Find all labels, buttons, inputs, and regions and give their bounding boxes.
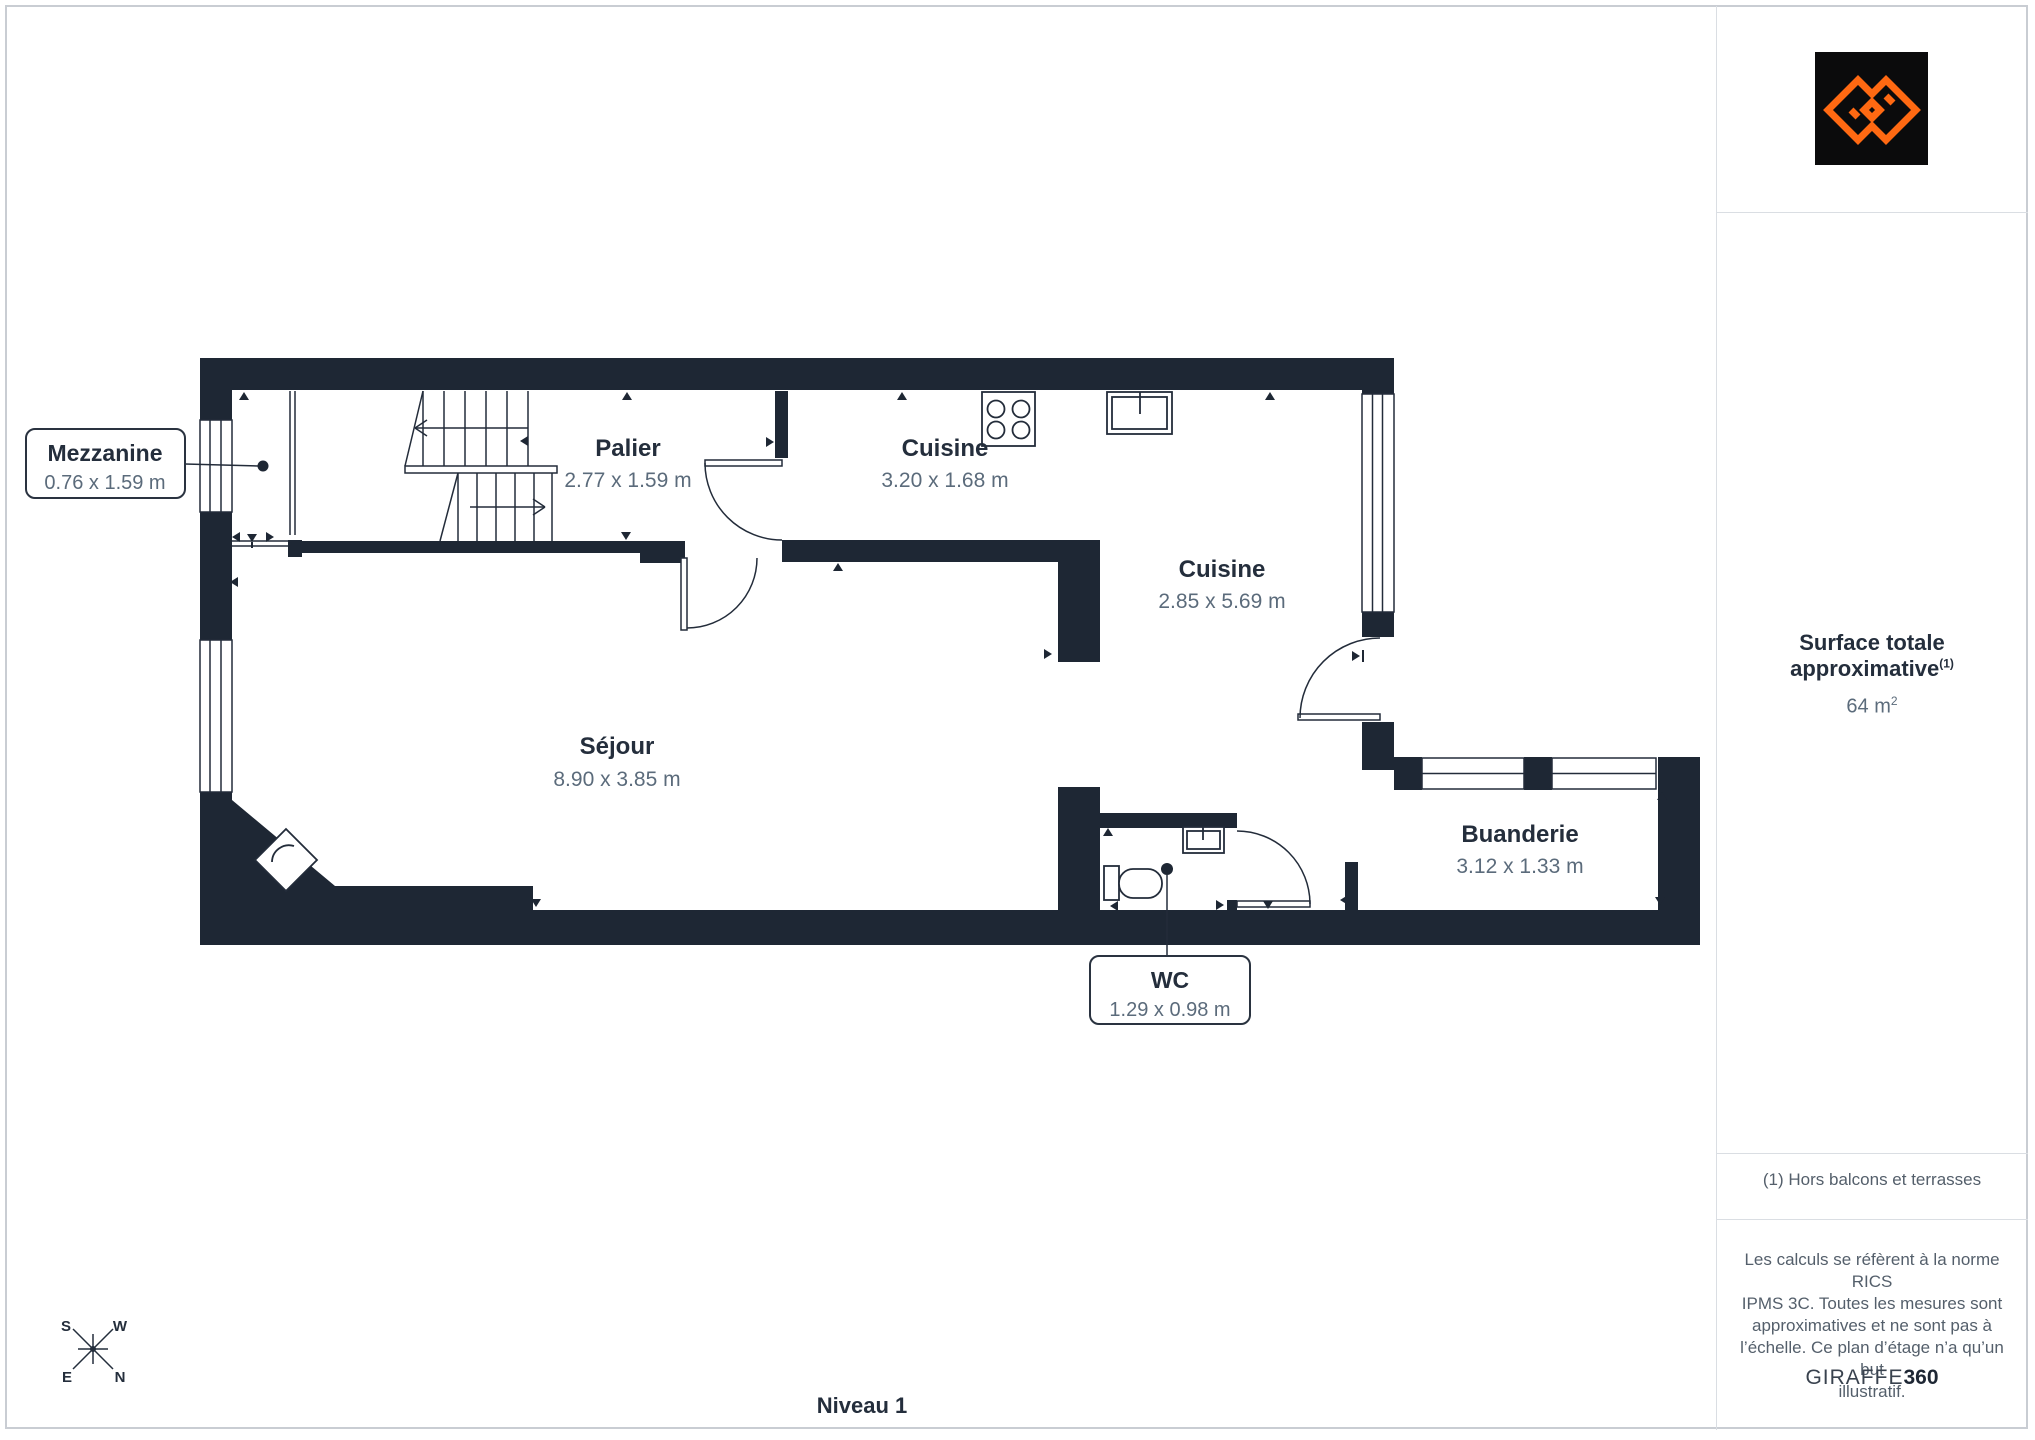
- level-label: Niveau 1: [817, 1393, 908, 1418]
- staircase-icon: [232, 391, 557, 546]
- disclaimer-line-3: approximatives et ne sont pas à: [1726, 1315, 2018, 1337]
- compass-letter-n: N: [115, 1369, 126, 1386]
- giraffe360-logo: [1815, 52, 1928, 165]
- room-dims-cuisine: 2.85 x 5.69 m: [1158, 590, 1285, 613]
- room-label-cuisine-haut: Cuisine: [902, 435, 989, 462]
- room-label-buanderie: Buanderie: [1461, 821, 1578, 848]
- callout-wc-dims: 1.29 x 0.98 m: [1109, 999, 1230, 1021]
- sidebar-divider-logo: [1717, 212, 2028, 213]
- wc-sink-icon: [1183, 827, 1224, 853]
- brand-name: GIRAFFE: [1805, 1366, 1903, 1389]
- sidebar-divider-footnote: [1717, 1153, 2028, 1154]
- callout-mezzanine-dims: 0.76 x 1.59 m: [44, 472, 165, 494]
- surface-block: Surface totale approximative(1) 64 m2: [1716, 630, 2028, 719]
- surface-title: Surface totale approximative(1): [1716, 630, 2028, 682]
- room-dims-sejour: 8.90 x 3.85 m: [553, 768, 680, 791]
- surface-title-text: Surface totale approximative: [1790, 630, 1945, 681]
- stove-icon: [982, 392, 1035, 446]
- toilet-icon: [1104, 866, 1162, 900]
- compass-letter-s: S: [61, 1318, 71, 1335]
- surface-value-sup: 2: [1891, 694, 1898, 708]
- compass-letter-w: W: [113, 1318, 128, 1335]
- surface-value-text: 64 m: [1846, 696, 1890, 718]
- room-label-sejour: Séjour: [580, 733, 655, 760]
- doors: [681, 460, 1380, 907]
- compass-letter-e: E: [62, 1369, 72, 1386]
- kitchen-sink-icon: [1107, 392, 1172, 434]
- room-dims-palier: 2.77 x 1.59 m: [564, 469, 691, 492]
- surface-note-ref: (1): [1939, 657, 1954, 671]
- brand-wordmark: GIRAFFE360: [1716, 1366, 2028, 1390]
- floor-plan-canvas: Palier 2.77 x 1.59 m Cuisine 3.20 x 1.68…: [0, 0, 2035, 1440]
- surface-footnote: (1) Hors balcons et terrasses: [1716, 1170, 2028, 1190]
- callout-wc-title: WC: [1151, 967, 1189, 993]
- compass-icon: [73, 1329, 113, 1369]
- brand-suffix: 360: [1903, 1366, 1938, 1389]
- sidebar-divider-disclaimer: [1717, 1219, 2028, 1220]
- room-label-palier: Palier: [595, 435, 660, 462]
- disclaimer-line-1: Les calculs se réfèrent à la norme RICS: [1726, 1249, 2018, 1293]
- surface-value: 64 m2: [1716, 694, 2028, 719]
- room-dims-cuisine-haut: 3.20 x 1.68 m: [881, 469, 1008, 492]
- giraffe360-monogram-icon: [1828, 80, 1916, 140]
- room-dims-buanderie: 3.12 x 1.33 m: [1456, 855, 1583, 878]
- room-label-cuisine: Cuisine: [1179, 556, 1266, 583]
- callout-mezzanine-title: Mezzanine: [47, 440, 162, 466]
- disclaimer-line-2: IPMS 3C. Toutes les mesures sont: [1726, 1293, 2018, 1315]
